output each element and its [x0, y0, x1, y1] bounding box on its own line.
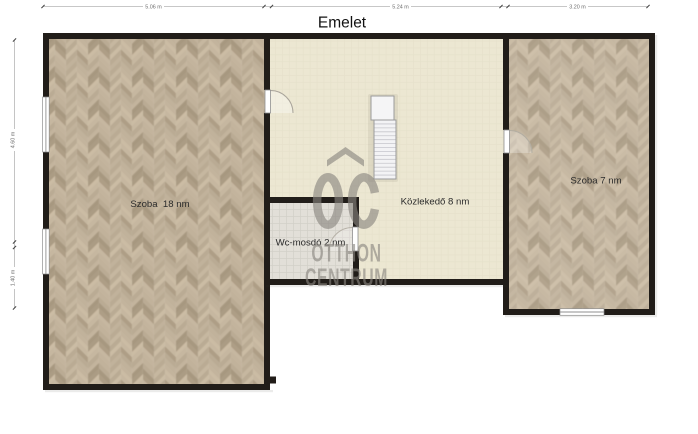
svg-text:OTTHON: OTTHON [311, 240, 381, 268]
svg-text:Szoba 18 nm: Szoba 18 nm [130, 199, 189, 210]
svg-text:Közlekedő 8 nm: Közlekedő 8 nm [401, 197, 470, 208]
svg-text:CENTRUM: CENTRUM [305, 264, 388, 292]
svg-text:5.06 m: 5.06 m [145, 5, 162, 11]
svg-text:3.20 m: 3.20 m [569, 5, 586, 11]
svg-text:1.40 m: 1.40 m [11, 269, 17, 286]
svg-text:Szoba 7 nm: Szoba 7 nm [570, 176, 621, 187]
svg-text:4.60 m: 4.60 m [11, 131, 17, 148]
svg-text:5.24 m: 5.24 m [392, 5, 409, 11]
svg-text:Emelet: Emelet [318, 15, 367, 32]
